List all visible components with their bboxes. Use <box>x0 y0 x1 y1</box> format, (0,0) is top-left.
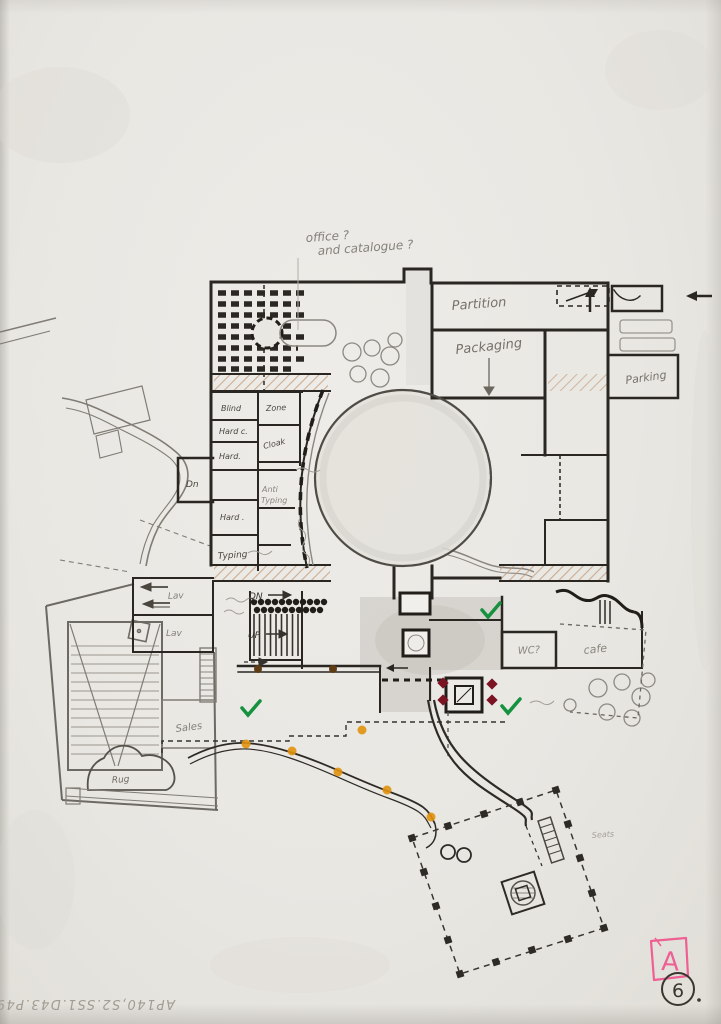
label-parking: Parking <box>625 368 668 387</box>
column-circle <box>252 318 282 348</box>
curving-walkway <box>188 743 471 862</box>
fountain <box>502 872 545 915</box>
label-wc: WC? <box>518 645 541 657</box>
label-hard: Hard. <box>219 452 241 461</box>
scanned-sketch-page: office ? and catalogue ? Partition Packa… <box>0 0 721 1024</box>
label-hard-copy: Hard c. <box>219 427 248 436</box>
label-seats: Seats <box>592 829 615 840</box>
floor-plan-sketch: office ? and catalogue ? Partition Packa… <box>0 0 721 1024</box>
pergola-columns <box>408 786 609 979</box>
archive-reference-code: AP140,S2.SS1.D43.P49 <box>0 996 176 1011</box>
label-anti-line1: Anti <box>261 485 279 494</box>
pencil-trees-upper <box>343 333 402 387</box>
label-packaging: Packaging <box>455 336 523 358</box>
label-dn-room: Dn <box>186 480 199 490</box>
sheet-number: 6 <box>672 980 684 1002</box>
label-typing: Typing <box>218 550 249 562</box>
orange-dots <box>242 726 436 822</box>
label-zone: Zone <box>265 403 287 413</box>
label-sales: Sales <box>175 721 203 735</box>
truck-bays <box>620 320 675 351</box>
packaging-arrow <box>484 358 494 395</box>
bench <box>538 817 564 863</box>
label-lav-upper: Lav <box>168 591 185 602</box>
label-partition: Partition <box>451 295 507 314</box>
main-stair <box>251 599 327 656</box>
label-cloak: Cloak <box>262 437 286 451</box>
plaza <box>408 786 609 979</box>
lav-arrows <box>141 583 170 608</box>
label-blind: Blind <box>221 404 242 413</box>
cafe-counter <box>556 590 642 628</box>
label-stair-up: UP <box>248 631 261 641</box>
auditorium-seating-rows <box>71 646 159 754</box>
label-cafe: cafe <box>583 642 608 657</box>
steep-path <box>428 700 542 866</box>
label-rug: Rug <box>112 775 131 786</box>
garden-dashed-border <box>560 624 646 718</box>
pencil-existing-building <box>0 318 218 810</box>
terrace-dashed-edge <box>162 722 505 755</box>
label-lav-lower: Lav <box>166 629 183 639</box>
label-stair-dn: DN <box>249 592 263 602</box>
label-hard-2: Hard . <box>220 513 244 522</box>
label-anti-line2: Typing <box>261 496 287 505</box>
